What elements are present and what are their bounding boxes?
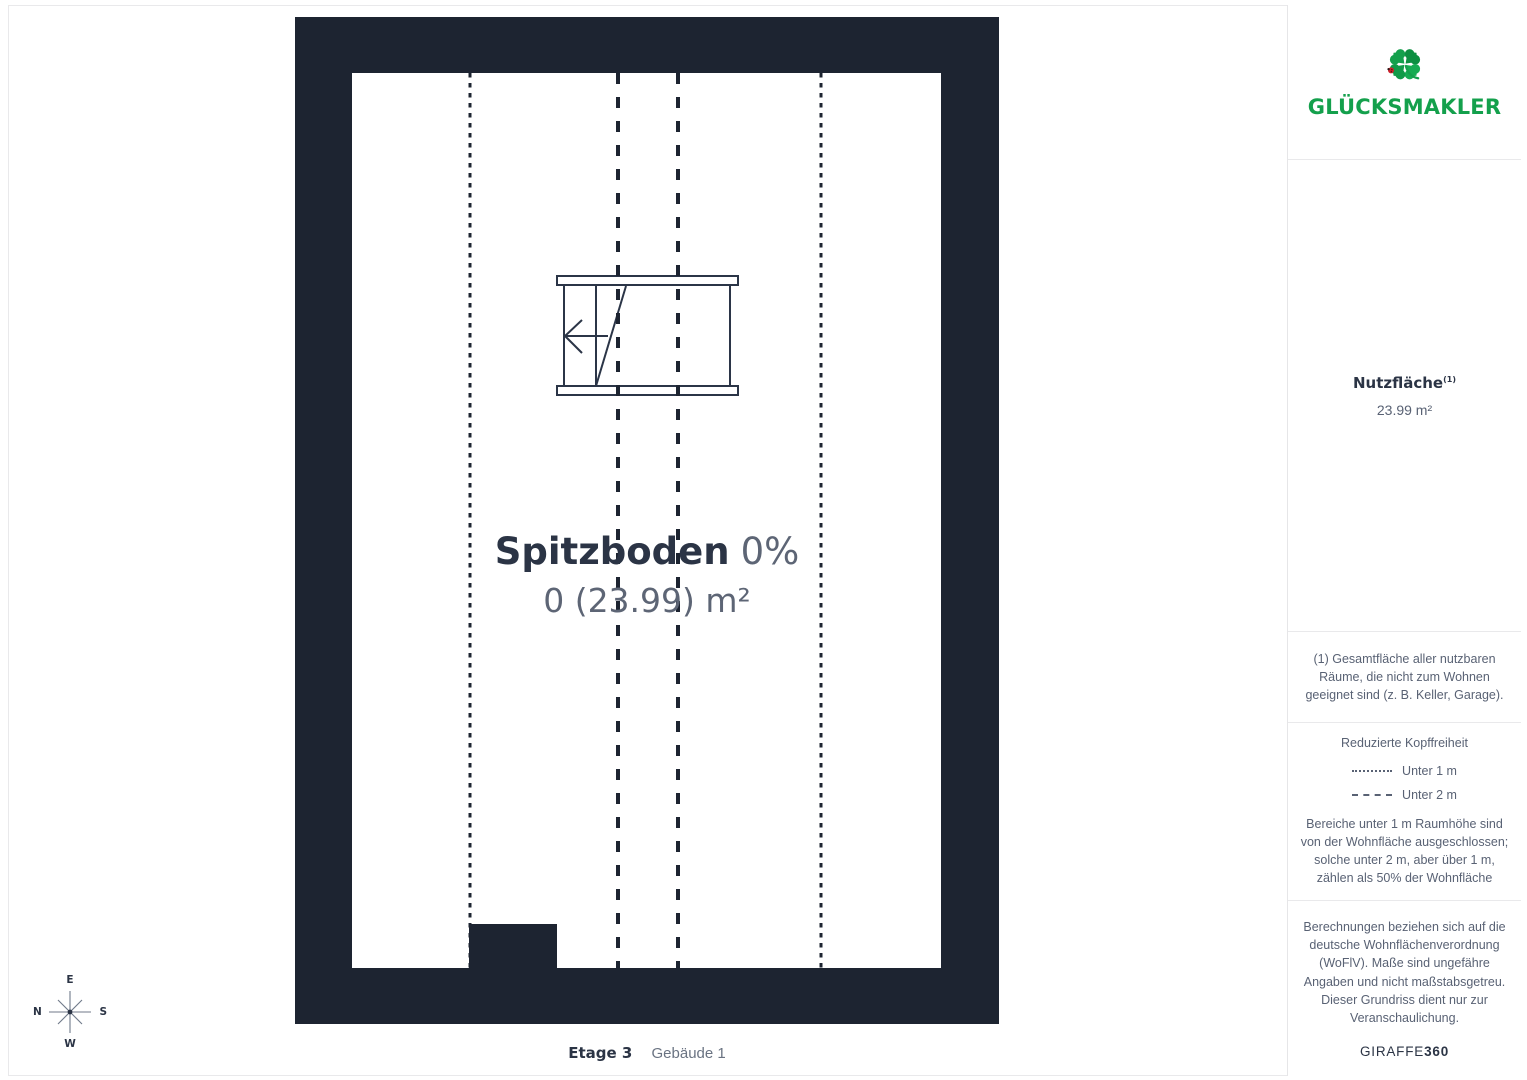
info-sidebar: GLÜCKSMAKLER Nutzfläche(1) 23.99 m² (1) … [1287,5,1521,1076]
floor-label: Etage 3 [568,1044,632,1062]
compass-letter-right: S [99,1006,107,1018]
wall-stub [469,924,557,968]
giraffe360-watermark: GIRAFFE360 [1360,1044,1449,1059]
four-leaf-clover-icon [1384,45,1426,87]
legend-section: Reduzierte Kopffreiheit Unter 1 m Unter … [1288,723,1521,901]
legend-note: Bereiche unter 1 m Raumhöhe sind von der… [1296,815,1514,888]
compass-letter-bottom: W [64,1038,76,1050]
brand-section: GLÜCKSMAKLER [1288,5,1521,160]
footnote-section: (1) Gesamtfläche aller nutzbaren Räume, … [1288,632,1521,723]
giraffe360-regular: GIRAFFE [1360,1044,1424,1059]
legend-item-under-1m: Unter 1 m [1352,759,1457,783]
disclaimer-section: Berechnungen beziehen sich auf die deuts… [1288,901,1521,1076]
usable-area-value: 23.99 m² [1377,402,1432,418]
room-interior [352,73,941,968]
usable-area-footnote-marker: (1) [1443,375,1456,384]
compass-letter-left: N [33,1006,42,1018]
legend-item-under-2m: Unter 2 m [1352,783,1457,807]
legend-title: Reduzierte Kopffreiheit [1341,736,1468,750]
building-label: Gebäude 1 [652,1045,726,1062]
ladybug-icon [1387,67,1394,73]
usable-area-label: Nutzfläche(1) [1353,374,1456,392]
brand-name: GLÜCKSMAKLER [1308,95,1501,119]
plan-footer: Etage 3 Gebäude 1 [295,1044,999,1062]
compass-star-icon [48,990,92,1034]
footnote-text: (1) Gesamtfläche aller nutzbaren Räume, … [1302,650,1508,704]
floorplan-drawing [295,17,999,1024]
disclaimer-text: Berechnungen beziehen sich auf die deuts… [1296,918,1514,1027]
dashed-line-swatch [1352,794,1392,796]
giraffe360-bold: 360 [1424,1044,1449,1059]
legend-item-label: Unter 1 m [1402,764,1457,778]
compass-rose: E N S W [33,974,107,1050]
compass-letter-top: E [66,974,73,986]
legend-item-label: Unter 2 m [1402,788,1457,802]
usable-area-section: Nutzfläche(1) 23.99 m² [1288,160,1521,632]
usable-area-label-text: Nutzfläche [1353,374,1443,392]
dotted-line-swatch [1352,770,1392,772]
